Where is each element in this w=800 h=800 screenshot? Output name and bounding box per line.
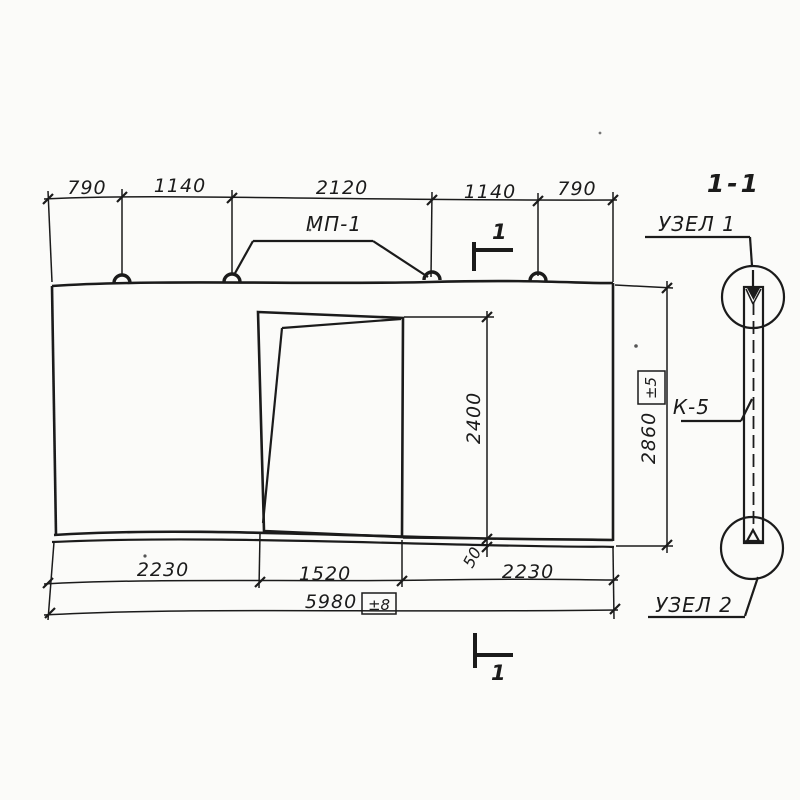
- panel-outline: [52, 281, 614, 547]
- detail-1-callout: УЗЕЛ 1: [645, 212, 752, 266]
- callout-leader: [741, 399, 752, 421]
- detail-2-callout: УЗЕЛ 2: [648, 577, 758, 617]
- section-cut-number-top: 1: [492, 220, 507, 244]
- dim-top-1140-left: 1140: [154, 175, 206, 197]
- technical-drawing: 790 1140 2120 1140 790 МП-1 1 1: [0, 0, 800, 800]
- dim-gap-50: 50: [459, 544, 485, 571]
- door-opening: [258, 312, 403, 537]
- callout-leader: [745, 577, 758, 616]
- dim-top-790-left: 790: [67, 177, 106, 199]
- detail-circle-node2: [721, 517, 783, 579]
- paper-speck: [599, 132, 602, 135]
- paper-speck: [634, 344, 638, 348]
- detail-1-label: УЗЕЛ 1: [658, 212, 736, 236]
- panel-height-dimension: 2860 ±5: [615, 281, 673, 553]
- callout-leader: [750, 237, 752, 266]
- dim-overall-width: 5980: [305, 591, 357, 613]
- section-bar: [744, 270, 763, 543]
- lifting-loop: [224, 274, 240, 282]
- overall-width-dimension: 5980 ±8: [44, 591, 620, 618]
- detail-2-label: УЗЕЛ 2: [655, 593, 733, 617]
- dim-overall-width-tolerance: ±8: [368, 596, 390, 614]
- dim-top-1140-right: 1140: [464, 181, 516, 203]
- dim-bottom-2230-right: 2230: [502, 561, 554, 583]
- dim-opening-height: 2400: [463, 392, 485, 444]
- paper-speck: [309, 229, 312, 232]
- section-view-1-1: 1-1 УЗЕЛ 1: [645, 169, 784, 617]
- opening-height-dimension: 2400 50: [403, 311, 496, 571]
- dim-panel-height-tolerance: ±5: [642, 377, 660, 399]
- callout-leader-right: [373, 241, 428, 277]
- section-cut-marker-bottom: 1: [475, 633, 513, 685]
- dim-top-2120: 2120: [316, 177, 368, 199]
- dim-bottom-1520: 1520: [299, 563, 351, 585]
- paper-speck: [143, 554, 146, 557]
- lifting-loop-callout: МП-1: [234, 212, 428, 277]
- connector-label: К-5: [673, 395, 710, 419]
- panel-elevation-view: 790 1140 2120 1140 790 МП-1 1 1: [43, 175, 673, 685]
- section-title: 1-1: [707, 169, 761, 198]
- blueprint-sheet: 790 1140 2120 1140 790 МП-1 1 1: [0, 0, 800, 800]
- section-cut-marker-top: 1: [474, 220, 513, 271]
- connector-callout: К-5: [673, 395, 752, 421]
- bottom-seat-detail: [745, 530, 762, 542]
- section-cut-number-bottom: 1: [491, 661, 506, 685]
- dim-top-790-right: 790: [557, 178, 596, 200]
- lifting-loop-label: МП-1: [306, 212, 362, 236]
- dim-bottom-2230-left: 2230: [137, 559, 189, 581]
- callout-leader-left: [234, 241, 253, 275]
- dim-panel-height: 2860: [638, 412, 660, 464]
